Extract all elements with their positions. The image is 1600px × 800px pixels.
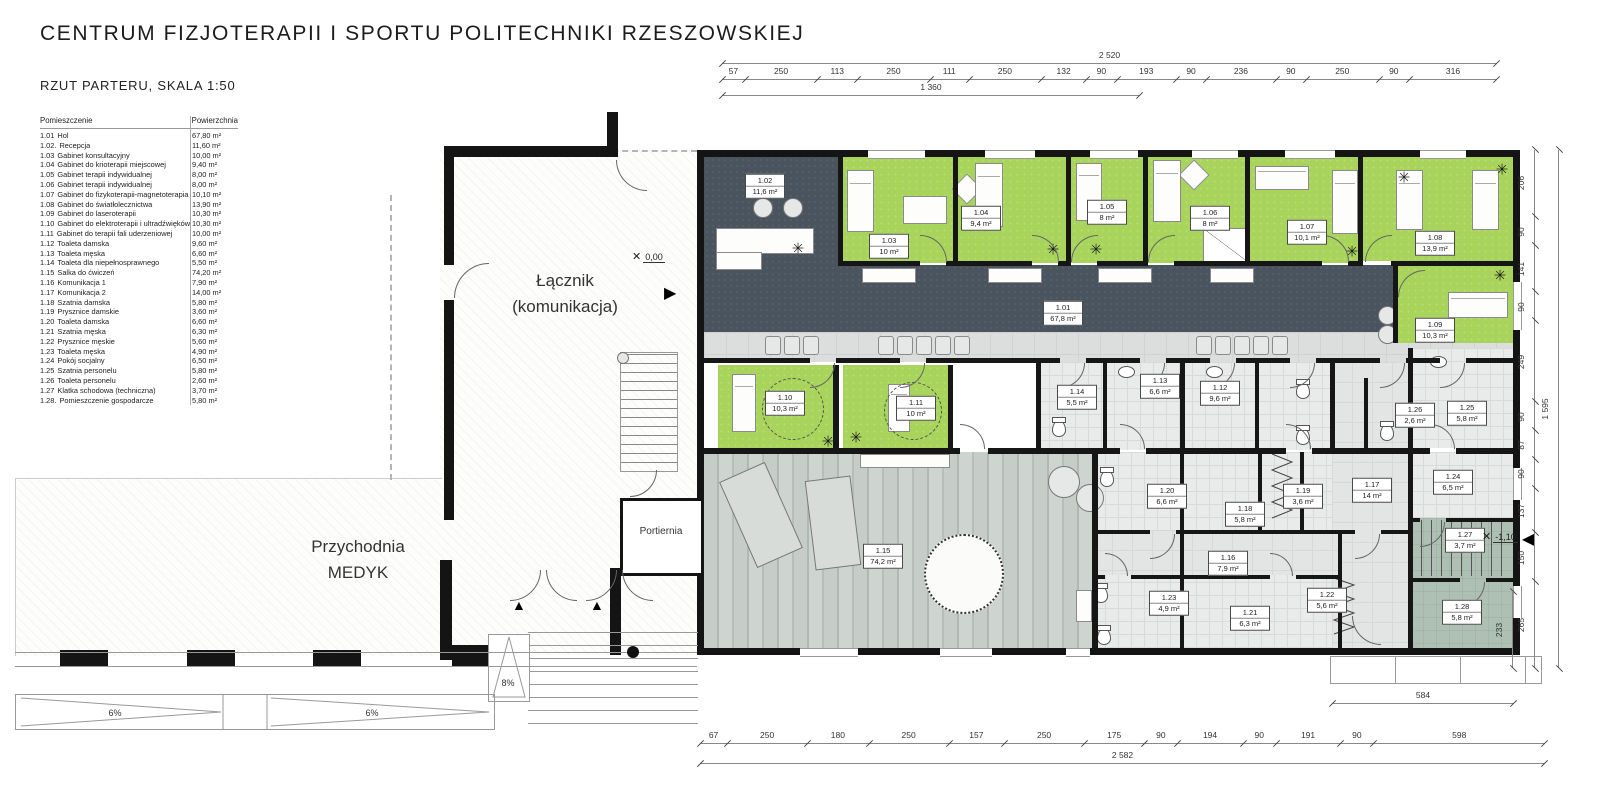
- wall: [1408, 578, 1460, 582]
- room-area: 7,9 m²: [1209, 564, 1247, 574]
- legend-room-area: 2,60 m²: [192, 376, 238, 386]
- dimension-segment: 250: [745, 66, 818, 80]
- legend-room-id: 1.12: [40, 239, 54, 248]
- room-tag: 1.0167,8 m²: [1043, 301, 1083, 326]
- legend-row: 1.20Toaleta damska6,60 m²: [40, 317, 238, 327]
- legend-room-name: Klatka schodowa (techniczna): [57, 386, 155, 395]
- dimension-segment: 249: [1534, 321, 1547, 402]
- legend-room-area: 67,80 m²: [192, 131, 238, 141]
- room-id: 1.15: [864, 546, 902, 557]
- room-id: 1.24: [1434, 472, 1472, 483]
- legend-room-name: Gabinet do fizykoterapii-magnetoterapia: [57, 190, 188, 199]
- legend-room-id: 1.14: [40, 258, 54, 267]
- legend-room-id: 1.21: [40, 327, 54, 336]
- dimension-segment: 1 360: [722, 82, 1140, 96]
- room-tag: 1.0910,3 m²: [1415, 318, 1455, 343]
- legend-room-name: Szatnia damska: [57, 298, 110, 307]
- room-tag: 1.0710,1 m²: [1287, 220, 1327, 245]
- legend-row: 1.13Toaleta męska6,60 m²: [40, 249, 238, 259]
- room-tag: 1.246,5 m²: [1433, 470, 1473, 495]
- legend-room-area: 10,30 m²: [192, 209, 238, 219]
- waiting-chair: [935, 336, 951, 355]
- room-area: 4,9 m²: [1150, 604, 1188, 614]
- legend-room-name: Prysznice damskie: [57, 307, 119, 316]
- wall: [1143, 157, 1148, 263]
- legend-room-id: 1.20: [40, 317, 54, 326]
- wall: [946, 261, 1032, 266]
- legend-room-name: Gabinet do elektroterapii i ultradźwiękó…: [57, 219, 190, 228]
- room-tag: 1.129,6 m²: [1200, 381, 1240, 406]
- dimension-segment: 90: [1534, 460, 1547, 489]
- room-id: 1.16: [1209, 553, 1247, 564]
- legend-room-name: Gabinet terapii indywidualnej: [57, 170, 152, 179]
- dimension-segment: 157: [949, 730, 1005, 744]
- legend-room-id: 1.22: [40, 337, 54, 346]
- lacznik-label: Łącznik (komunikacja): [470, 268, 660, 319]
- dimension-segment: 194: [1177, 730, 1242, 744]
- waiting-chair: [1215, 336, 1231, 355]
- legend-room-name: Toaleta damska: [57, 239, 109, 248]
- dimension-segment: 250: [857, 66, 930, 80]
- legend-room-id: 1.13: [40, 249, 54, 258]
- wall: [1391, 261, 1513, 266]
- waiting-chair: [954, 336, 970, 355]
- room-tag: 1.136,6 m²: [1140, 374, 1180, 399]
- entry-arrow-icon: ▲: [512, 598, 526, 612]
- legend-room-id: 1.03: [40, 151, 54, 160]
- furniture: [988, 268, 1042, 283]
- waiting-chair: [1196, 336, 1212, 355]
- legend-row: 1.15Salka do ćwiczeń74,20 m²: [40, 268, 238, 278]
- site-wall-line: [15, 666, 697, 667]
- entry-arrow-icon: ▶: [664, 286, 676, 302]
- dim-bottom-segments: 67250180250157250175901949019190598: [700, 730, 1545, 744]
- window: [1090, 150, 1138, 159]
- room-tag: 1.058 m²: [1087, 200, 1127, 225]
- dimension-segment: 2 582: [700, 750, 1545, 764]
- plant-icon: ✳: [792, 242, 805, 257]
- legend-room-name: Gabinet konsultacyjny: [57, 151, 129, 160]
- legend-rows: 1.01Hol67,80 m²1.02.Recepcja11,60 m²1.03…: [40, 131, 238, 405]
- legend-room-area: 6,50 m²: [192, 356, 238, 366]
- waiting-chair: [803, 336, 819, 355]
- room-tag: 1.1010,3 m²: [765, 391, 805, 416]
- przychodnia-label: Przychodnia MEDYK: [260, 534, 456, 585]
- legend-room-name: Toaleta damska: [57, 317, 109, 326]
- legend-divider: [190, 116, 191, 405]
- legend-room-name: Salka do ćwiczeń: [57, 268, 114, 277]
- treatment-bed: [1332, 170, 1358, 234]
- legend-room-area: 10,00 m²: [192, 151, 238, 161]
- room-id: 1.19: [1284, 486, 1322, 497]
- legend-room-id: 1.26: [40, 376, 54, 385]
- wall: [1092, 530, 1150, 534]
- furniture: [1076, 590, 1092, 622]
- toilet-icon: [1097, 628, 1111, 645]
- wall: [1408, 452, 1413, 648]
- room-tag: 1.285,8 m²: [1442, 600, 1482, 625]
- round-furniture: [1076, 484, 1104, 512]
- legend-row: 1.11Gabinet do terapii fali uderzeniowej…: [40, 229, 238, 239]
- legend-row: 1.08Gabinet do światłolecznictwa13,90 m²: [40, 200, 238, 210]
- room-id: 1.03: [870, 236, 908, 247]
- legend-room-name: Toaleta personelu: [57, 376, 115, 385]
- room-area: 6,5 m²: [1434, 483, 1472, 493]
- stair-post: [617, 352, 629, 364]
- dimension-segment: 137: [1534, 489, 1547, 534]
- room-id: 1.20: [1148, 486, 1186, 497]
- wall: [838, 157, 843, 265]
- wall: [1446, 518, 1513, 522]
- lacznik-line2: (komunikacja): [470, 294, 660, 320]
- dim-right-partial: 233: [1512, 592, 1525, 668]
- terrace: [1330, 656, 1542, 684]
- legend-row: 1.23Toaleta męska4,90 m²: [40, 347, 238, 357]
- room-tag: 1.1714 m²: [1352, 478, 1392, 503]
- dimension-segment: 584: [1332, 690, 1514, 704]
- dimension-segment: 316: [1409, 66, 1497, 80]
- legend-room-name: Gabinet do krioterapii miejscowej: [57, 160, 165, 169]
- legend-row: 1.26Toaleta personelu2,60 m²: [40, 376, 238, 386]
- treatment-bed: [1448, 292, 1508, 318]
- legend-room-area: 5,80 m²: [192, 298, 238, 308]
- room-area: 5,8 m²: [1226, 515, 1264, 525]
- lacznik-line1: Łącznik: [470, 268, 660, 294]
- legend-room-name: Toaleta dla niepełnosprawnego: [57, 258, 159, 267]
- wall: [1456, 448, 1513, 454]
- round-furniture: [783, 198, 803, 218]
- legend-room-area: 13,90 m²: [192, 200, 238, 210]
- room-area: 5,8 m²: [1448, 414, 1486, 424]
- wall: [1103, 362, 1107, 450]
- room-id: 1.18: [1226, 504, 1264, 515]
- wall: [1131, 575, 1270, 579]
- site-wall: [607, 112, 618, 157]
- room-area: 5,8 m²: [1443, 613, 1481, 623]
- dimension-segment: 113: [817, 66, 857, 80]
- level-value: 0,00: [643, 252, 665, 263]
- dimension-segment: 90: [1176, 66, 1206, 80]
- room-tag: 1.0813,9 m²: [1415, 231, 1455, 256]
- waiting-chair: [1272, 336, 1288, 355]
- entry-arrow-icon: ▲: [590, 598, 604, 612]
- wall: [1486, 578, 1513, 582]
- waiting-chair: [784, 336, 800, 355]
- wall: [1466, 358, 1513, 363]
- wall: [1348, 261, 1363, 266]
- furniture: [1098, 268, 1152, 283]
- furniture: [716, 252, 762, 270]
- site-wall-line: [15, 652, 697, 653]
- legend-row: 1.27Klatka schodowa (techniczna)3,70 m²: [40, 386, 238, 396]
- room-tag: 1.193,6 m²: [1283, 484, 1323, 509]
- room-area: 3,6 m²: [1284, 497, 1322, 507]
- wall: [1316, 358, 1380, 363]
- legend-row: 1.25Szatnia personelu5,80 m²: [40, 366, 238, 376]
- window: [985, 150, 1035, 159]
- legend-room-name: Gabinet do terapii fali uderzeniowej: [57, 229, 172, 238]
- room-tag: 1.273,7 m²: [1445, 528, 1485, 553]
- legend-room-name: Pomieszczenie gospodarcze: [59, 396, 153, 405]
- wall: [1066, 157, 1071, 263]
- dimension-segment: 233: [1512, 592, 1525, 668]
- floor-plan-page: CENTRUM FIZJOTERAPII I SPORTU POLITECHNI…: [0, 0, 1600, 800]
- dim-top-total: 2 520: [722, 50, 1497, 64]
- wall: [953, 157, 958, 263]
- room-area: 5,5 m²: [1058, 398, 1096, 408]
- room-id: 1.08: [1416, 233, 1454, 244]
- column-dot: [627, 646, 639, 658]
- dimension-segment: 250: [1004, 730, 1084, 744]
- room-area: 10,1 m²: [1288, 233, 1326, 243]
- toilet-icon: [1052, 420, 1066, 437]
- dimension-segment: 90: [1534, 217, 1547, 246]
- wall: [836, 358, 900, 363]
- legend-room-name: Gabinet do laseroterapii: [57, 209, 135, 218]
- room-id: 1.28: [1443, 602, 1481, 613]
- treatment-bed: [732, 374, 756, 432]
- legend-room-id: 1.17: [40, 288, 54, 297]
- room-id: 1.14: [1058, 387, 1096, 398]
- room-tag: 1.049,4 m²: [961, 206, 1001, 231]
- dimension-segment: 250: [969, 66, 1042, 80]
- wall: [1146, 448, 1286, 454]
- legend-room-area: 8,00 m²: [192, 170, 238, 180]
- legend-row: 1.07Gabinet do fizykoterapii-magnetotera…: [40, 190, 238, 200]
- legend-room-name: Prysznice męskie: [57, 337, 115, 346]
- room-tag: 1.167,9 m²: [1208, 551, 1248, 576]
- legend-room-name: Komunikacja 2: [57, 288, 105, 297]
- site-wall: [452, 146, 617, 157]
- legend-col-room: Pomieszczenie: [40, 116, 192, 125]
- legend-room-area: 3,70 m²: [192, 386, 238, 396]
- toilet-icon: [1100, 470, 1114, 487]
- legend-room-area: 10,00 m²: [192, 229, 238, 239]
- legend-row: 1.22Prysznice męskie5,60 m²: [40, 337, 238, 347]
- legend-room-area: 4,90 m²: [192, 347, 238, 357]
- wall: [1408, 348, 1413, 452]
- portiernia-label: Portiernia: [625, 526, 697, 537]
- legend-room-id: 1.11: [40, 229, 54, 238]
- plant-icon: ✳: [1494, 269, 1507, 284]
- room-tag: 1.185,8 m²: [1225, 502, 1265, 527]
- dimension-segment: 57: [722, 66, 745, 80]
- ramp-6-outline: [15, 694, 495, 732]
- room-id: 1.11: [897, 398, 935, 409]
- room-id: 1.17: [1353, 480, 1391, 491]
- legend-room-id: 1.18: [40, 298, 54, 307]
- wall: [1393, 266, 1398, 343]
- wall: [1097, 261, 1148, 266]
- dim-right-total: 1 595: [1558, 150, 1571, 668]
- legend-room-area: 6,60 m²: [192, 249, 238, 259]
- legend-row: 1.06Gabinet terapii indywidualnej8,00 m²: [40, 180, 238, 190]
- legend-row: 1.18Szatnia damska5,80 m²: [40, 298, 238, 308]
- room-tag: 1.255,8 m²: [1447, 401, 1487, 426]
- legend-room-area: 11,60 m²: [192, 141, 238, 151]
- dimension-segment: 90: [1340, 730, 1373, 744]
- legend-row: 1.05Gabinet terapii indywidualnej8,00 m²: [40, 170, 238, 180]
- dimension-segment: 90: [1243, 730, 1276, 744]
- wall: [988, 448, 1120, 454]
- dimension-segment: 191: [1276, 730, 1340, 744]
- wall: [1176, 530, 1355, 534]
- room-id: 1.27: [1446, 530, 1484, 541]
- ramp-6-label: 6%: [352, 708, 392, 718]
- wall: [1174, 261, 1322, 266]
- legend-row: 1.17Komunikacja 214,00 m²: [40, 288, 238, 298]
- room-id: 1.13: [1141, 376, 1179, 387]
- furniture: [862, 268, 916, 283]
- room-id: 1.07: [1288, 222, 1326, 233]
- waiting-chair: [765, 336, 781, 355]
- room-tag: 1.262,6 m²: [1395, 403, 1435, 428]
- legend-room-area: 10,30 m²: [192, 219, 238, 229]
- legend-room-id: 1.06: [40, 180, 54, 189]
- dimension-segment: 67: [700, 730, 727, 744]
- room-area: 6,6 m²: [1148, 497, 1186, 507]
- page-subtitle: RZUT PARTERU, SKALA 1:50: [40, 78, 236, 93]
- window: [1066, 648, 1090, 657]
- wall: [1236, 358, 1290, 363]
- wall: [1245, 157, 1250, 263]
- site-wall: [444, 300, 454, 520]
- legend-room-area: 5,60 m²: [192, 337, 238, 347]
- wall: [1364, 378, 1368, 450]
- legend-room-name: Gabinet terapii indywidualnej: [57, 180, 152, 189]
- wall: [1330, 362, 1335, 450]
- legend-room-id: 1.05: [40, 170, 54, 179]
- wall: [1296, 575, 1338, 579]
- legend-room-id: 1.04: [40, 160, 54, 169]
- treatment-bed: [1472, 170, 1499, 230]
- room-tag: 1.068 m²: [1190, 206, 1230, 231]
- room-id: 1.05: [1088, 202, 1126, 213]
- level-cross-icon: ✕: [632, 251, 641, 263]
- room-area: 14 m²: [1353, 491, 1391, 501]
- legend-row: 1.14Toaleta dla niepełnosprawnego5,50 m²: [40, 258, 238, 268]
- legend-room-id: 1.15: [40, 268, 54, 277]
- waiting-chair: [1253, 336, 1269, 355]
- dimension-segment: 598: [1373, 730, 1545, 744]
- room-id: 1.06: [1191, 208, 1229, 219]
- waiting-chair: [878, 336, 894, 355]
- wall: [704, 358, 810, 363]
- plant-icon: ✳: [1398, 171, 1411, 186]
- dimension-segment: 90: [1144, 730, 1177, 744]
- room-id: 1.25: [1448, 403, 1486, 414]
- dimension-segment: 250: [869, 730, 949, 744]
- ramp-8-outline: [489, 635, 529, 701]
- wall: [1381, 530, 1408, 534]
- room-area: 2,6 m²: [1396, 416, 1434, 426]
- legend-row: 1.03Gabinet konsultacyjny10,00 m²: [40, 151, 238, 161]
- legend-header: Pomieszczenie Powierzchnia: [40, 116, 238, 129]
- room-id: 1.10: [766, 393, 804, 404]
- legend-room-id: 1.02.: [40, 141, 56, 150]
- przychodnia-line2: MEDYK: [260, 560, 456, 586]
- waiting-chair: [1234, 336, 1250, 355]
- dimension-segment: 180: [807, 730, 869, 744]
- legend-room-area: 5,50 m²: [192, 258, 238, 268]
- treatment-bed: [1153, 160, 1181, 222]
- sink-icon: [1118, 366, 1135, 378]
- dimension-segment: 206: [1534, 150, 1547, 217]
- dimension-segment: 111: [930, 66, 969, 80]
- legend-room-id: 1.09: [40, 209, 54, 218]
- waiting-chair: [916, 336, 932, 355]
- legend-row: 1.19Prysznice damskie3,60 m²: [40, 307, 238, 317]
- toilet-icon: [1380, 424, 1394, 441]
- legend-room-name: Recepcja: [59, 141, 90, 150]
- legend-room-name: Hol: [57, 131, 68, 140]
- page-title: CENTRUM FIZJOTERAPII I SPORTU POLITECHNI…: [40, 22, 804, 46]
- legend-room-area: 7,90 m²: [192, 278, 238, 288]
- dimension-segment: 193: [1117, 66, 1176, 80]
- dimension-segment: 250: [727, 730, 807, 744]
- legend-room-id: 1.27: [40, 386, 54, 395]
- room-area: 6,6 m²: [1141, 387, 1179, 397]
- wall: [833, 365, 839, 450]
- dimension-segment: 141: [1534, 246, 1547, 292]
- legend-row: 1.28.Pomieszczenie gospodarcze5,80 m²: [40, 396, 238, 406]
- room-tag: 1.225,6 m²: [1307, 588, 1347, 613]
- room-area: 13,9 m²: [1416, 244, 1454, 254]
- legend-room-id: 1.16: [40, 278, 54, 287]
- room-tag: 1.1110 m²: [896, 396, 936, 421]
- legend-room-area: 5,80 m²: [192, 366, 238, 376]
- treatment-bed: [1255, 166, 1309, 190]
- room-id: 1.21: [1231, 608, 1269, 619]
- room-area: 6,3 m²: [1231, 619, 1269, 629]
- legend-row: 1.12Toaleta damska9,60 m²: [40, 239, 238, 249]
- room-area: 8 m²: [1088, 213, 1126, 223]
- site-wall: [444, 146, 454, 265]
- legend-room-name: Toaleta męska: [57, 347, 105, 356]
- wall: [1036, 362, 1041, 450]
- room-area: 3,7 m²: [1446, 541, 1484, 551]
- wall: [704, 448, 960, 454]
- room-area: 10 m²: [897, 409, 935, 419]
- plant-icon: ✳: [850, 431, 863, 446]
- legend-room-id: 1.07: [40, 190, 54, 199]
- room-area: 74,2 m²: [864, 557, 902, 567]
- wall: [1166, 358, 1210, 363]
- legend-room-id: 1.10: [40, 219, 54, 228]
- portiernia-room: [620, 498, 704, 576]
- legend-row: 1.21Szatnia męska6,30 m²: [40, 327, 238, 337]
- round-furniture: [1048, 466, 1080, 498]
- legend-row: 1.01Hol67,80 m²: [40, 131, 238, 141]
- waiting-chair: [897, 336, 913, 355]
- entrance-steps: [528, 624, 698, 736]
- room-area: 10,3 m²: [766, 404, 804, 414]
- room-area: 9,6 m²: [1201, 394, 1239, 404]
- dimension-segment: 265: [1534, 582, 1547, 668]
- room-id: 1.02: [746, 176, 784, 187]
- room-area: 10,3 m²: [1416, 331, 1454, 341]
- legend-room-area: 10,10 m²: [192, 190, 238, 200]
- dimension-segment: 1 595: [1558, 150, 1571, 668]
- room-area: 10 m²: [870, 247, 908, 257]
- legend-row: 1.10Gabinet do elektroterapii i ultradźw…: [40, 219, 238, 229]
- ramp-8: [488, 634, 530, 702]
- dimension-segment: 90: [1276, 66, 1306, 80]
- level-marker-entry: ✕0,00: [632, 250, 665, 263]
- legend-room-area: 6,60 m²: [192, 317, 238, 327]
- room-id: 1.26: [1396, 405, 1434, 416]
- legend-room-area: 9,40 m²: [192, 160, 238, 170]
